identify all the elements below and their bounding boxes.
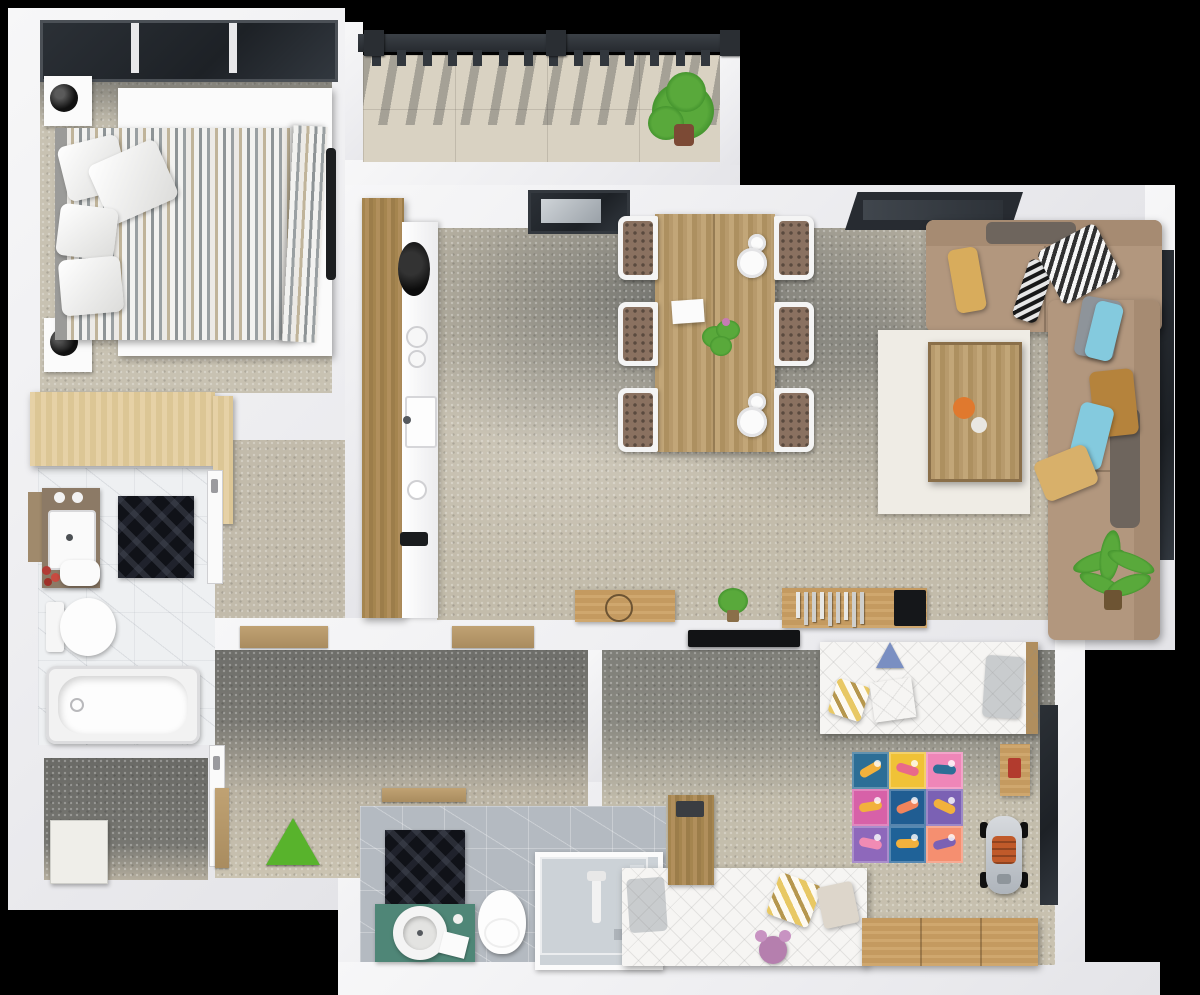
kitchen-burner-1 <box>406 326 428 348</box>
bath-towel-roll <box>60 560 100 586</box>
bed-pillow <box>58 255 125 316</box>
balcony-baluster <box>397 50 406 66</box>
kids-bed-frame <box>1026 642 1038 734</box>
window-mullion-1 <box>131 23 139 73</box>
storage-cabinet <box>50 820 108 884</box>
dining-chair <box>774 388 814 452</box>
dining-chair-cushion <box>623 393 653 447</box>
balcony-baluster <box>423 50 432 66</box>
dining-chair-cushion <box>779 307 809 361</box>
dresser-divider <box>920 918 922 966</box>
balcony-railing-bar <box>358 34 726 52</box>
book-spine <box>860 592 864 624</box>
bath-candles-icon <box>42 566 62 586</box>
play-mat-doodle-dot <box>948 834 955 841</box>
bath2-tray <box>439 931 470 959</box>
wall-kids-right <box>1055 618 1085 995</box>
decor-bench <box>575 590 675 622</box>
kitchen-burner-2 <box>408 350 426 368</box>
play-mat-doodle-dot <box>911 760 918 767</box>
exterior-bottom-left <box>0 910 338 995</box>
plate <box>737 248 767 278</box>
bath-dark-mat <box>118 496 194 578</box>
candle-dot <box>51 573 60 582</box>
balcony-post <box>546 30 566 56</box>
toilet-seat-line <box>484 918 520 948</box>
bedroom-door-gap <box>326 148 336 280</box>
balcony-baluster <box>701 50 710 66</box>
plant-pot <box>727 610 739 622</box>
entrance-marker-triangle <box>266 818 320 865</box>
book-spine <box>852 592 856 627</box>
book-spine <box>836 592 840 623</box>
bedroom-window <box>40 20 338 82</box>
play-mat-doodle-dot <box>911 834 918 841</box>
wall-kids-bottom <box>338 962 1160 995</box>
balcony-baluster <box>499 50 508 66</box>
plant-frond <box>710 336 732 356</box>
book-spine <box>844 592 848 620</box>
console-tv <box>894 590 926 626</box>
bed-pillow <box>55 203 119 262</box>
bath-toilet <box>46 598 116 656</box>
balcony-baluster <box>473 50 482 66</box>
kids-desk <box>668 795 714 885</box>
ride-on-car-icon <box>980 816 1028 894</box>
book-spine <box>812 592 816 622</box>
kids-window <box>1040 705 1058 905</box>
daybed-pillow-gray <box>626 877 668 934</box>
play-mat-tile <box>889 826 926 863</box>
car-steering <box>997 874 1011 884</box>
kids-dresser <box>862 918 1038 966</box>
play-mat-doodle-dot <box>874 760 881 767</box>
kitchen-hob-icon <box>398 242 430 296</box>
play-mat-doodle-dot <box>948 760 955 767</box>
bath-cup-2 <box>72 492 83 503</box>
shower-column <box>592 879 601 923</box>
bathtub-drain-icon <box>70 698 84 712</box>
balcony-baluster <box>676 50 685 66</box>
kids-side-table-toy <box>1008 758 1021 778</box>
dining-chair-cushion <box>779 393 809 447</box>
toilet-bowl <box>60 598 116 656</box>
palm-pot <box>1104 590 1122 610</box>
coffee-table-white-bowl <box>971 417 987 433</box>
dining-chair-cushion <box>623 221 653 275</box>
balcony-post <box>364 30 384 56</box>
book-spine <box>828 592 832 626</box>
balcony-baluster <box>600 50 609 66</box>
palm-plant-icon <box>1072 528 1156 624</box>
book-spine <box>804 592 808 625</box>
decor-rings-icon <box>605 594 633 622</box>
dining-chair <box>774 302 814 366</box>
book-spine <box>796 592 800 618</box>
teepee-toy-icon <box>876 642 904 668</box>
kitchen-sink-faucet-icon <box>403 416 411 424</box>
kids-side-table <box>1000 744 1030 796</box>
living-top-window-glass <box>863 200 1003 220</box>
dining-chair <box>618 216 658 280</box>
balcony-baluster <box>574 50 583 66</box>
bathtub <box>46 666 200 744</box>
coffee-table <box>928 342 1022 482</box>
balcony-plant-icon <box>648 72 718 150</box>
dining-chair <box>618 302 658 366</box>
window-mullion-2 <box>229 23 237 73</box>
corridor-floor <box>215 440 345 618</box>
exterior-top-left <box>0 0 345 8</box>
exterior-left-margin <box>0 0 8 995</box>
play-mat-tile <box>889 789 926 826</box>
plate <box>737 407 767 437</box>
play-mat-tile <box>852 752 889 789</box>
kitchen-round-basin <box>407 480 427 500</box>
dining-chair-cushion <box>779 221 809 275</box>
play-mat-tile <box>926 752 963 789</box>
play-mat-tile <box>852 789 889 826</box>
bath2-faucet-icon <box>417 930 423 936</box>
plush-ear <box>755 930 767 942</box>
wall-balcony-right <box>720 40 740 165</box>
kids-play-mat <box>852 752 963 863</box>
exterior-right-margin <box>1175 0 1200 995</box>
play-mat-doodle-dot <box>874 797 881 804</box>
play-mat-doodle-dot <box>948 797 955 804</box>
bedroom-wardrobe <box>30 392 215 466</box>
shower-head-icon <box>587 871 606 881</box>
bath-faucet-icon <box>66 534 73 541</box>
bath2-toilet <box>478 890 526 960</box>
balcony-baluster <box>650 50 659 66</box>
kids-wall-tv <box>688 630 800 647</box>
balcony-baluster <box>524 50 533 66</box>
play-mat-tile <box>926 826 963 863</box>
candle-dot <box>42 566 51 575</box>
candle-dot <box>44 578 52 586</box>
balcony-door-glass <box>541 199 601 223</box>
balcony-baluster <box>448 50 457 66</box>
dining-centerpiece-plant-icon <box>700 318 742 358</box>
book-spine <box>820 592 824 619</box>
coffee-table-orange-bowl <box>953 397 975 419</box>
play-mat-tile <box>852 826 889 863</box>
floor-plant-small-icon <box>718 588 748 622</box>
door-handle-icon <box>211 479 218 493</box>
bath-shelf <box>28 492 42 562</box>
dining-chair <box>774 216 814 280</box>
exterior-top-right <box>740 0 1200 185</box>
bath-cup-1 <box>54 492 65 503</box>
plant-pot <box>674 124 694 146</box>
balcony-post <box>720 30 740 56</box>
balcony-baluster <box>625 50 634 66</box>
plant-flower-dots <box>722 318 730 326</box>
balcony-door <box>528 190 630 234</box>
table-lamp-top-icon <box>50 84 78 112</box>
kids-pillow-white <box>869 677 916 722</box>
bath2-soap-dot <box>453 914 463 924</box>
bath2-vanity <box>375 904 475 962</box>
play-mat-doodle-dot <box>911 797 918 804</box>
bath2-door-sill <box>382 788 466 802</box>
desk-item <box>676 801 704 817</box>
kitchen-black-faucet-icon <box>400 532 428 546</box>
exterior-kids-cutout <box>1085 650 1175 962</box>
door-handle-icon <box>213 756 220 770</box>
floor-plan-scene <box>0 0 1200 995</box>
bathroom-door-leaf <box>207 470 223 584</box>
dining-chair <box>618 388 658 452</box>
car-seat <box>992 836 1016 864</box>
play-mat-tile <box>926 789 963 826</box>
plush-ear <box>779 930 791 942</box>
wall-kitchen-spine <box>345 185 362 650</box>
door-sill-living-hall <box>452 626 534 648</box>
dining-chair-cushion <box>623 307 653 361</box>
exterior-above-balcony <box>345 0 740 22</box>
kids-bed-pillow <box>982 655 1024 719</box>
plush-toy-icon <box>755 928 791 966</box>
wall-hall-kids <box>588 650 602 790</box>
door-sill-bedroom-hall <box>240 626 328 648</box>
dresser-divider <box>980 918 982 966</box>
play-mat-tile <box>889 752 926 789</box>
bath2-dark-mat <box>385 830 465 906</box>
hall-door-leaf <box>215 788 229 868</box>
play-mat-doodle-dot <box>874 834 881 841</box>
